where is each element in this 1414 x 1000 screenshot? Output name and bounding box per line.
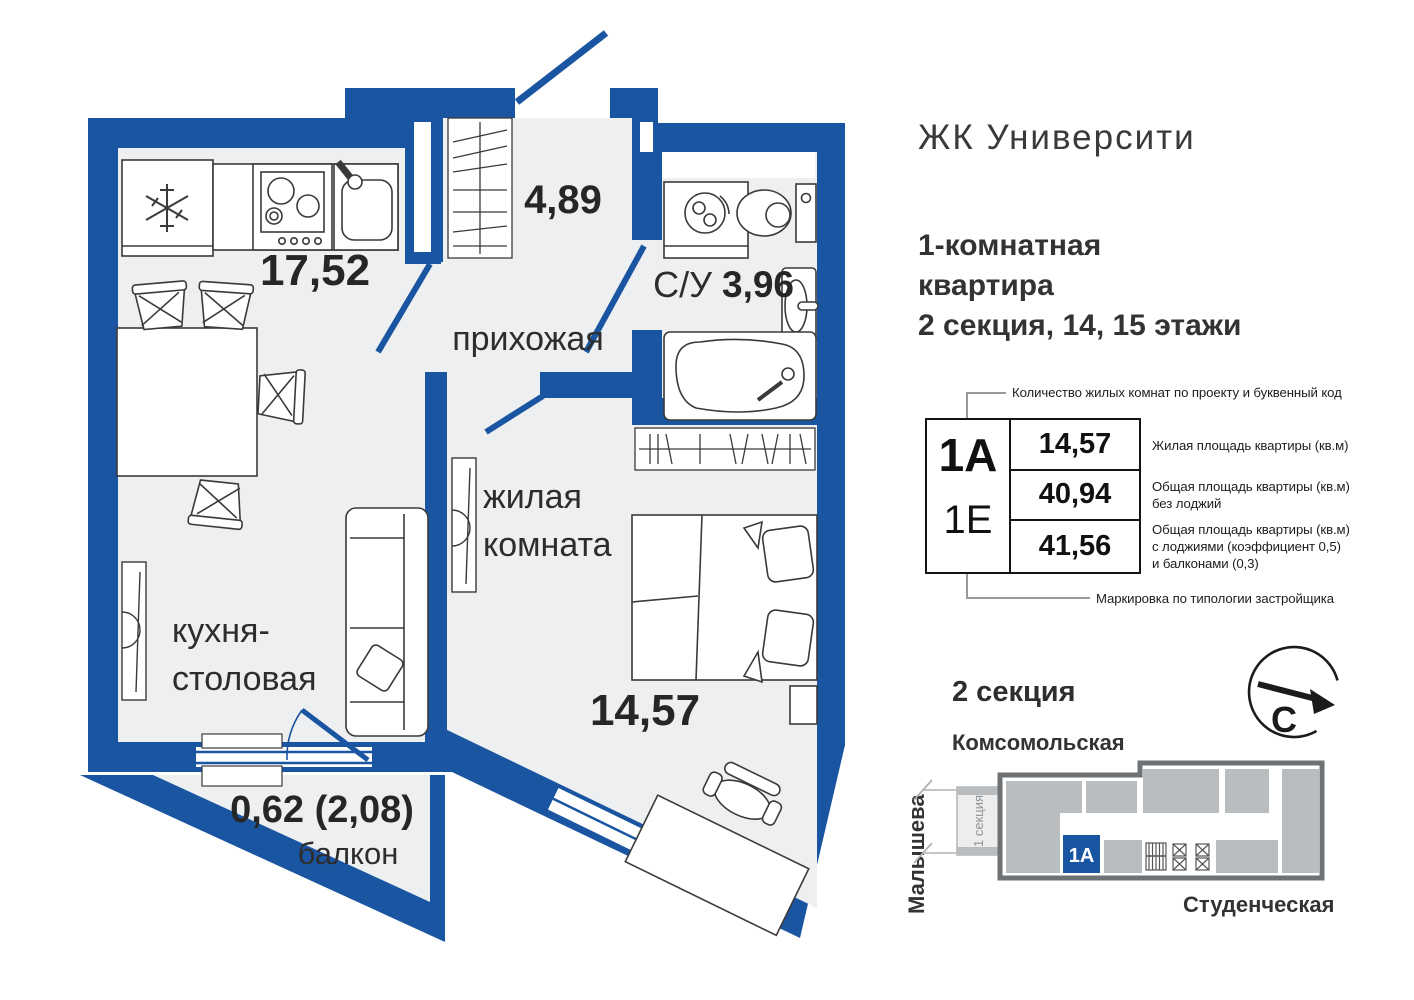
- kitchen-tap: [348, 175, 362, 189]
- complex-name: ЖК Университи: [918, 118, 1196, 158]
- closet-wall-cap: [405, 252, 441, 264]
- pillow: [762, 525, 815, 583]
- living-label-line2: комната: [483, 526, 612, 564]
- kitchen-area-value: 17,52: [260, 246, 370, 295]
- legend-note-row3-line2: с лоджиями (коэффициент 0,5): [1152, 538, 1350, 555]
- legend-connector: [966, 597, 1090, 599]
- north-arrow: С: [1238, 636, 1350, 748]
- tv-living: [452, 458, 476, 592]
- vent-shaft: [662, 152, 815, 178]
- dining-table: [117, 328, 257, 476]
- legend-note-row2: Общая площадь квартиры (кв.м) без лоджий: [1152, 478, 1350, 512]
- apartment-title-line3: 2 секция, 14, 15 этажи: [918, 306, 1241, 346]
- kitchen-door-opening: [425, 262, 447, 374]
- developer-code: 1Е: [927, 498, 1009, 543]
- chair: [258, 368, 306, 424]
- nightstand: [790, 686, 817, 724]
- total-area-summer-cell: 41,56: [1011, 521, 1139, 572]
- neighbor-section-band: [957, 787, 1000, 795]
- north-label: С: [1271, 699, 1297, 740]
- neighbor-section-band: [957, 847, 1000, 855]
- balcony-door-block: [202, 734, 282, 748]
- bath-wall-lower: [632, 330, 662, 398]
- highlighted-unit-label: 1А: [1069, 845, 1095, 867]
- apartment-title-line1: 1-комнатная: [918, 226, 1241, 266]
- legend-note-row1: Жилая площадь квартиры (кв.м): [1152, 437, 1348, 454]
- kitchen-sink: [342, 180, 392, 240]
- bath-label: С/У: [653, 264, 713, 305]
- closet-wall-right: [431, 118, 441, 264]
- floor-plan: 17,52 4,89 прихожая С/У 3,96 жилая комна…: [0, 0, 880, 1000]
- legend-note-row3-line3: и балконами (0,3): [1152, 555, 1350, 572]
- legend-connector: [966, 392, 968, 418]
- stairs-icon: [1146, 843, 1166, 870]
- closet-wall-left: [405, 118, 414, 264]
- legend-note-row2-line1: Общая площадь квартиры (кв.м): [1152, 478, 1350, 495]
- legend-note-bottom: Маркировка по типологии застройщика: [1096, 590, 1334, 607]
- pillow: [762, 609, 815, 667]
- legend-note-row3: Общая площадь квартиры (кв.м) с лоджиями…: [1152, 521, 1350, 572]
- apartment-title-line2: квартира: [918, 266, 1241, 306]
- legend-note-row2-line2: без лоджий: [1152, 495, 1350, 512]
- balcony-label: балкон: [298, 836, 399, 871]
- legend-note-row3-line1: Общая площадь квартиры (кв.м): [1152, 521, 1350, 538]
- type-code: 1А: [927, 428, 1009, 482]
- living-label-line1: жилая: [483, 478, 582, 516]
- closet-niche: [414, 122, 431, 256]
- living-wardrobe: [635, 428, 815, 470]
- legend-table: 1А 1Е 14,57 40,94 41,56: [925, 418, 1141, 574]
- balcony-door-block: [202, 766, 282, 786]
- legend-connector: [966, 392, 1006, 394]
- living-area-value: 14,57: [590, 686, 700, 735]
- total-area-cell: 40,94: [1011, 471, 1139, 522]
- legend-connector: [966, 570, 968, 598]
- hall-label: прихожая: [452, 320, 604, 358]
- kitchen-label-line2: столовая: [172, 660, 316, 698]
- tv-kitchen: [122, 562, 146, 700]
- toilet-tank: [796, 184, 816, 242]
- bath-sink-tap: [798, 302, 818, 310]
- north-arrow-head: [1310, 689, 1335, 714]
- apartment-title: 1-комнатная квартира 2 секция, 14, 15 эт…: [918, 226, 1241, 346]
- legend-codes: 1А 1Е: [927, 420, 1011, 572]
- section-title: 2 секция: [952, 676, 1076, 709]
- legend-note-top: Количество жилых комнат по проекту и бук…: [1012, 384, 1342, 401]
- kitchen-label-line1: кухня-: [172, 612, 270, 650]
- bath-wall-upper: [632, 152, 662, 240]
- neighbor-section-label: 1 секция: [971, 795, 986, 847]
- hall-area-value: 4,89: [524, 178, 602, 222]
- living-area-cell: 14,57: [1011, 420, 1139, 471]
- toilet-bowl: [737, 190, 791, 236]
- hall-wardrobe: [448, 118, 512, 258]
- bath-area-value: 3,96: [722, 264, 794, 305]
- sofa: [346, 508, 428, 736]
- site-map: 1 секция 1А: [900, 752, 1350, 912]
- balcony-area-value: 0,62 (2,08): [230, 789, 414, 831]
